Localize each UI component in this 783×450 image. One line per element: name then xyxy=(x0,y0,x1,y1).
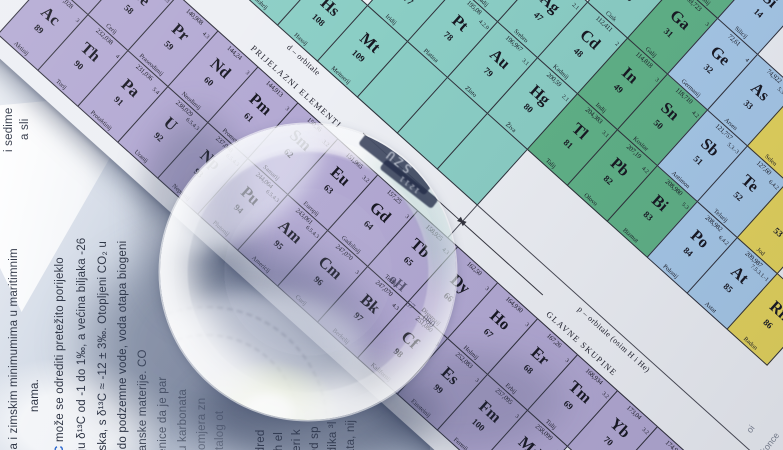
book-text-line: a trska, s δ¹³C ≈ -12 ± 3‰. Otopljeni CO… xyxy=(97,241,109,450)
book-text-line: Od sp xyxy=(309,426,321,450)
book-text-line: ¹³C može se odrediti pretežito porijeklo xyxy=(54,257,66,450)
book-text-line: maju δ¹³C od -1 do 1‰, a većina biljaka … xyxy=(76,238,88,450)
book-text-line: ima i zimskim minimumima u maritimnim xyxy=(8,248,20,450)
photo-stage: i sedimea sliima i zimskim minimumima u … xyxy=(0,0,783,450)
book-text-line: a sli xyxy=(19,119,31,140)
glass-vessel: SZU 1211 oH 67 080 xyxy=(160,124,456,420)
book-text-line: odred xyxy=(255,430,267,450)
book-text-line: odika ³l xyxy=(327,421,339,450)
isotope-accent: ¹³C xyxy=(54,445,66,450)
book-text-line: rganske materije. CO xyxy=(137,349,149,450)
book-text-line: nama. xyxy=(29,379,41,412)
book-text-line: i sedime xyxy=(3,108,15,152)
book-text-line: iteri k xyxy=(291,429,303,450)
book-text-line: kih el xyxy=(273,432,285,450)
book-text-line: nata, nij xyxy=(345,420,357,450)
book-text-line: lo do podzemne vode, voda otapa biogeni xyxy=(117,241,129,450)
